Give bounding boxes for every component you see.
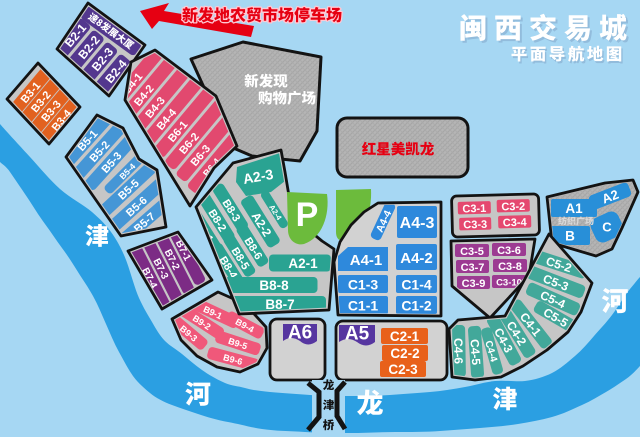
svg-text:A4-1: A4-1: [350, 252, 383, 269]
svg-text:A1: A1: [565, 201, 583, 216]
svg-text:A4-2: A4-2: [400, 250, 433, 267]
svg-text:C3-3: C3-3: [463, 219, 487, 232]
svg-text:C2-2: C2-2: [390, 346, 419, 361]
svg-text:C1-1: C1-1: [348, 297, 379, 313]
svg-text:C1-2: C1-2: [401, 297, 432, 313]
svg-text:C3-7: C3-7: [461, 262, 485, 274]
svg-text:B: B: [565, 229, 575, 244]
svg-text:C1-4: C1-4: [401, 276, 432, 292]
svg-text:P: P: [296, 196, 319, 234]
svg-text:C3-1: C3-1: [462, 203, 486, 216]
svg-text:C2-3: C2-3: [388, 362, 418, 377]
svg-text:C3-9: C3-9: [462, 278, 486, 290]
svg-text:C1-3: C1-3: [348, 276, 379, 292]
svg-text:A5: A5: [345, 324, 370, 345]
svg-text:C3-5: C3-5: [460, 246, 484, 258]
svg-text:C4-5: C4-5: [467, 339, 483, 366]
svg-text:C3-4: C3-4: [503, 217, 528, 230]
svg-text:B8-8: B8-8: [259, 278, 289, 293]
svg-text:A6: A6: [288, 323, 312, 344]
svg-text:C2-1: C2-1: [390, 329, 420, 344]
svg-text:C3-2: C3-2: [501, 201, 525, 214]
svg-text:C3-6: C3-6: [497, 245, 521, 257]
svg-text:A2-1: A2-1: [288, 256, 318, 271]
svg-text:A4-3: A4-3: [400, 215, 435, 232]
svg-text:C: C: [602, 220, 612, 235]
svg-text:C3-8: C3-8: [498, 261, 522, 273]
